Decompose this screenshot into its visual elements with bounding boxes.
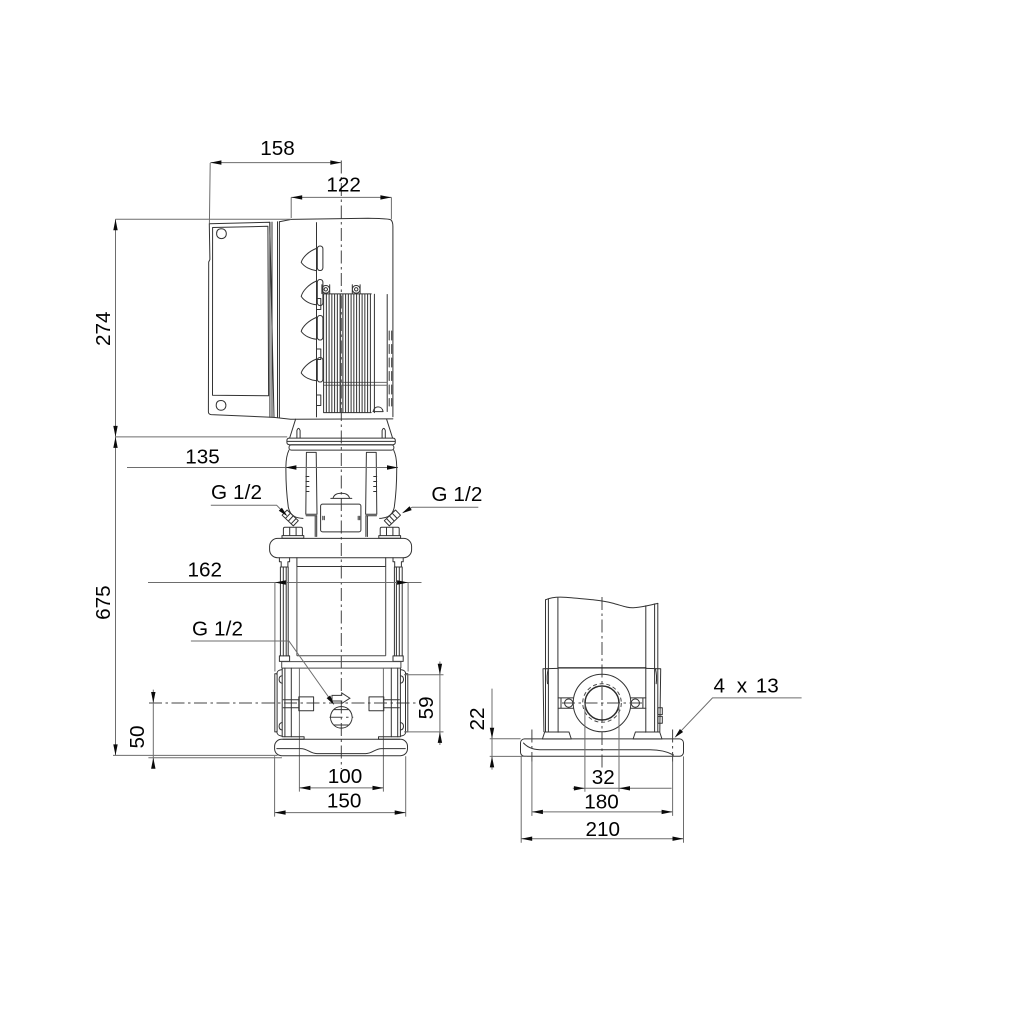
svg-text:G 1/2: G 1/2 xyxy=(192,618,243,641)
svg-text:G 1/2: G 1/2 xyxy=(211,481,262,504)
svg-text:59: 59 xyxy=(415,696,438,719)
svg-text:x: x xyxy=(737,675,748,698)
svg-text:274: 274 xyxy=(92,311,115,346)
svg-text:32: 32 xyxy=(592,766,615,789)
svg-text:135: 135 xyxy=(185,445,220,468)
svg-text:210: 210 xyxy=(586,818,621,841)
svg-text:100: 100 xyxy=(328,765,363,788)
svg-text:50: 50 xyxy=(126,725,149,748)
svg-text:150: 150 xyxy=(327,790,362,813)
svg-text:4: 4 xyxy=(714,675,726,698)
svg-text:13: 13 xyxy=(756,675,779,698)
svg-text:22: 22 xyxy=(466,707,489,730)
svg-text:162: 162 xyxy=(188,559,223,582)
svg-text:G 1/2: G 1/2 xyxy=(431,483,482,506)
svg-text:675: 675 xyxy=(92,585,115,620)
svg-text:122: 122 xyxy=(326,173,361,196)
svg-text:158: 158 xyxy=(260,137,295,160)
svg-text:180: 180 xyxy=(584,791,619,814)
